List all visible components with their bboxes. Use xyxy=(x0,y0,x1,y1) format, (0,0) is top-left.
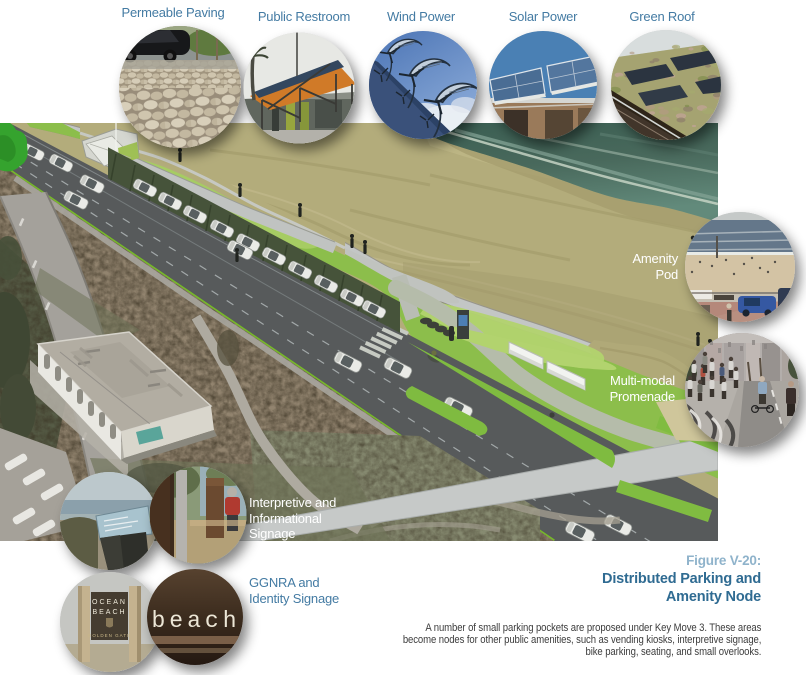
svg-text:BEACH: BEACH xyxy=(92,609,126,616)
svg-text:GOLDEN GATE: GOLDEN GATE xyxy=(88,633,131,638)
svg-text:beach: beach xyxy=(151,608,240,634)
svg-text:OCEAN: OCEAN xyxy=(92,599,127,606)
